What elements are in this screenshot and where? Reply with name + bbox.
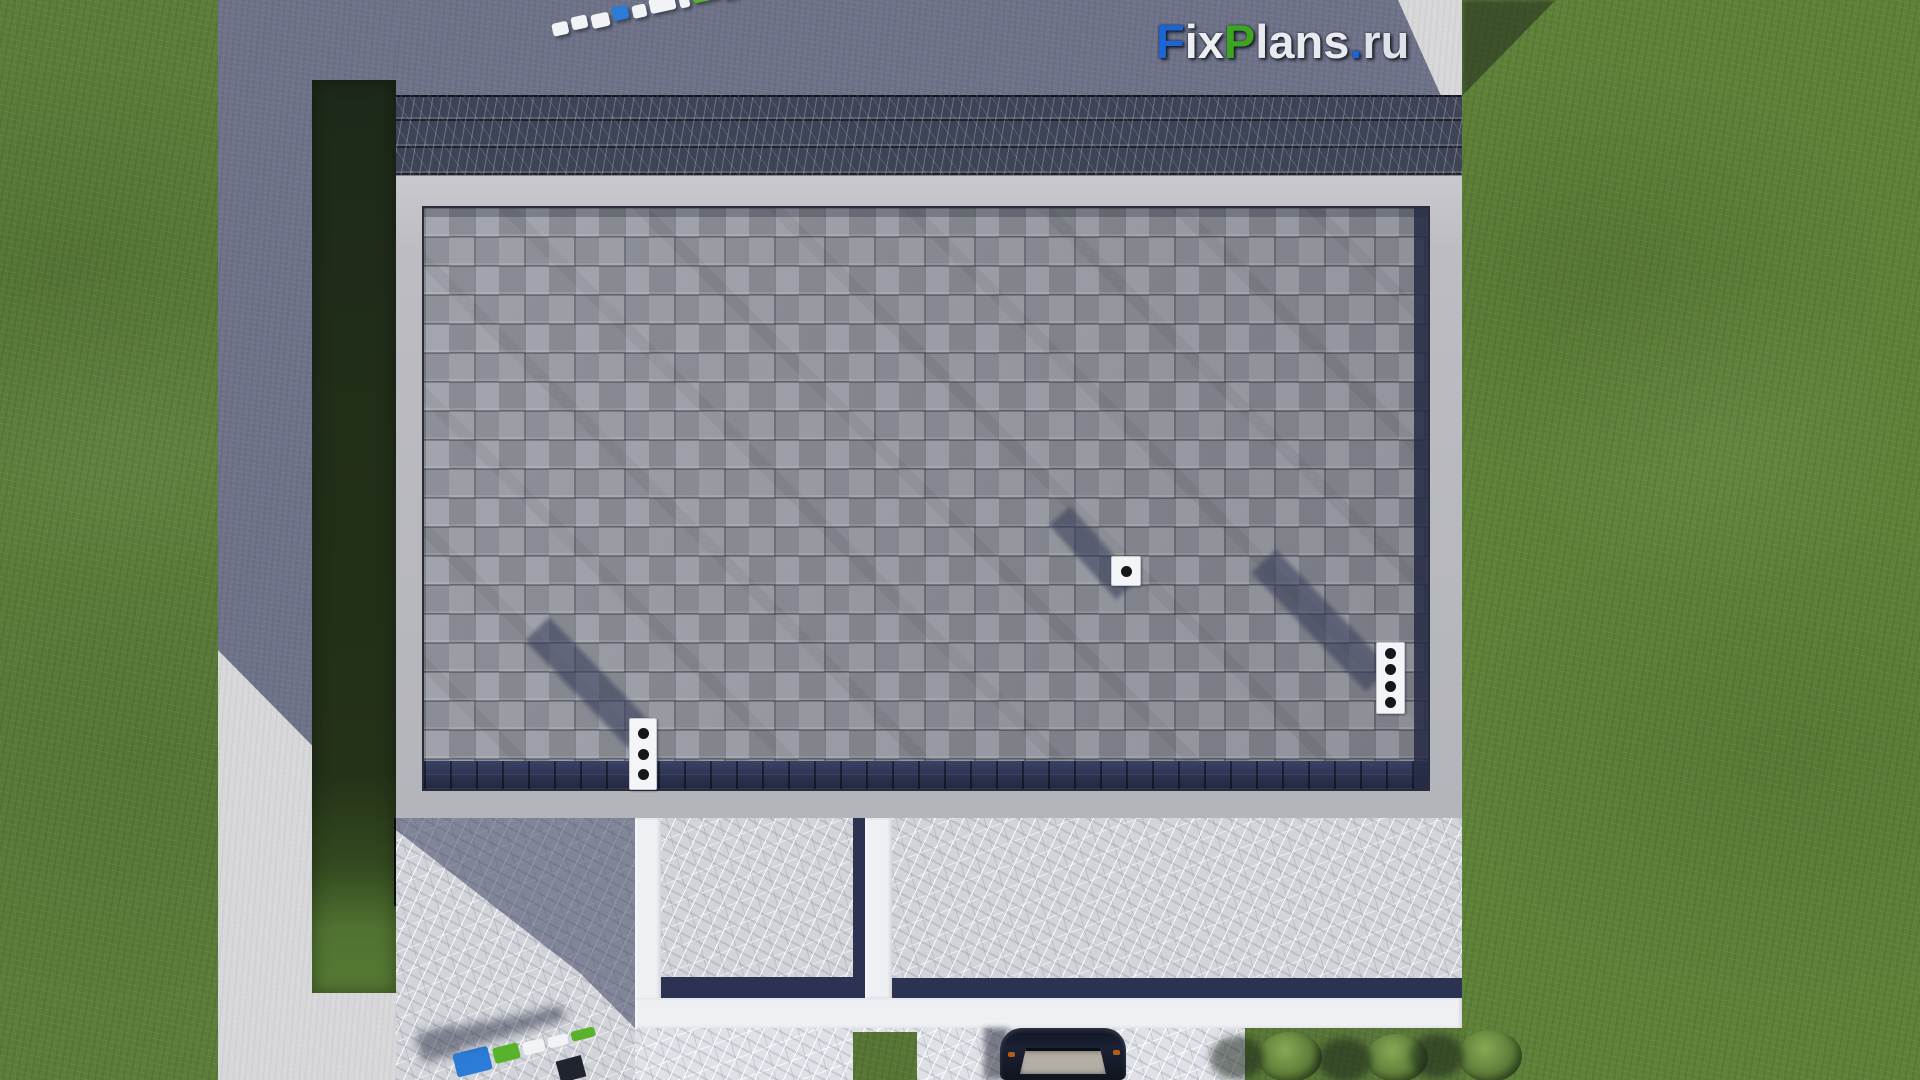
flue-opening xyxy=(638,749,649,760)
flue-opening xyxy=(1385,681,1396,692)
watermark-segment: P xyxy=(1224,15,1255,68)
terrace-navy-divider xyxy=(853,818,865,998)
marker-white xyxy=(631,3,647,19)
hedge-strip xyxy=(312,80,396,993)
marker-green xyxy=(492,1042,521,1064)
aerial-render: FixPlans.ru xyxy=(0,0,1920,1080)
marble-panel-2 xyxy=(892,818,1462,1002)
watermark-segment: F xyxy=(1156,15,1185,68)
marker-white xyxy=(570,14,588,30)
lawn-left xyxy=(0,0,218,1080)
lawn-right xyxy=(1462,0,1920,1080)
flue-opening xyxy=(1385,648,1396,659)
garden-steps xyxy=(396,95,1462,175)
gable-navy-edge xyxy=(1414,208,1428,789)
panel-1-navy-edge xyxy=(661,977,853,998)
marker-green xyxy=(691,0,719,4)
ridge-dark-row xyxy=(424,208,1428,217)
watermark-segment: ix xyxy=(1185,15,1224,68)
terrace-beam-vertical-2 xyxy=(865,818,892,998)
flue-opening xyxy=(638,728,649,739)
chimney-right xyxy=(1376,642,1405,714)
car-mirror-left xyxy=(1008,1052,1015,1057)
shingle-field xyxy=(422,206,1430,791)
flue-opening xyxy=(1121,566,1132,577)
marker-blue xyxy=(611,4,630,21)
eave-tile-joints xyxy=(424,761,1428,789)
roof-vent xyxy=(1111,556,1141,586)
car-mirror-right xyxy=(1113,1050,1120,1055)
path-bottom xyxy=(635,1028,1245,1080)
watermark-segment: lans xyxy=(1255,15,1349,68)
flue-opening xyxy=(1385,697,1396,708)
marker-white xyxy=(590,11,611,29)
flue-opening xyxy=(1385,664,1396,675)
terrace-beam-horizontal xyxy=(635,998,1462,1028)
marker-white xyxy=(521,1037,545,1055)
marker-blue xyxy=(452,1046,493,1078)
bush xyxy=(1458,1030,1522,1080)
lawn-patch xyxy=(853,1032,917,1080)
eave-navy-rows xyxy=(424,761,1428,789)
roof xyxy=(396,175,1462,818)
watermark-segment: . xyxy=(1349,15,1362,68)
marker-white xyxy=(547,1033,569,1049)
car-windshield xyxy=(1020,1048,1106,1074)
bush xyxy=(1258,1032,1322,1080)
chimney-left xyxy=(629,718,657,790)
marker-white xyxy=(648,0,677,14)
marker-green xyxy=(570,1026,596,1042)
chimney-right-shadow xyxy=(1251,549,1390,691)
watermark-logo: FixPlans.ru xyxy=(1156,14,1409,69)
flue-opening xyxy=(638,769,649,780)
marker-white xyxy=(551,21,569,37)
marble-panel-1 xyxy=(661,818,853,998)
terrace-beam-vertical-1 xyxy=(635,818,661,1028)
house-shadow-on-lawn xyxy=(1462,0,1582,120)
marker-white xyxy=(678,0,690,8)
watermark-segment: ru xyxy=(1362,15,1409,68)
car xyxy=(1000,1028,1126,1080)
